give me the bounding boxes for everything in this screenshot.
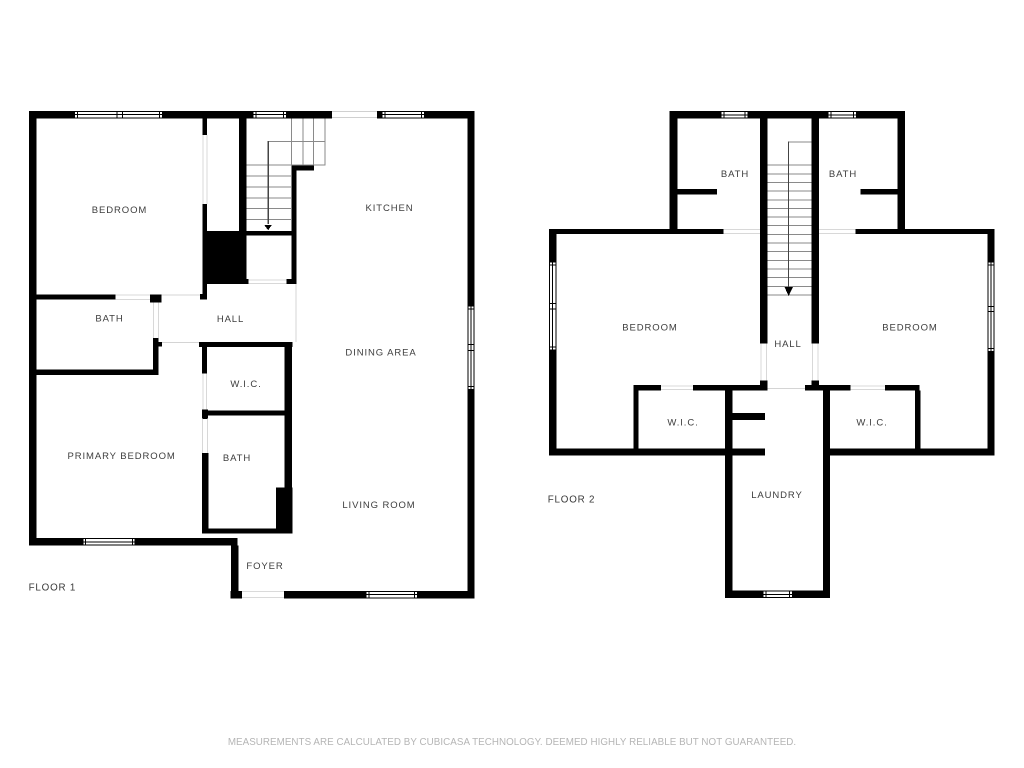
svg-text:KITCHEN: KITCHEN [366,203,414,214]
svg-text:DINING AREA: DINING AREA [345,348,416,359]
svg-text:FLOOR 2: FLOOR 2 [548,495,596,506]
svg-text:BATH: BATH [223,453,251,464]
svg-text:PRIMARY BEDROOM: PRIMARY BEDROOM [68,451,176,462]
svg-text:BEDROOM: BEDROOM [882,322,937,333]
svg-text:FLOOR 1: FLOOR 1 [29,582,77,593]
svg-text:LIVING ROOM: LIVING ROOM [342,500,415,511]
svg-text:W.I.C.: W.I.C. [230,379,261,390]
svg-text:W.I.C.: W.I.C. [856,417,887,428]
svg-text:W.I.C.: W.I.C. [667,417,698,428]
svg-text:BATH: BATH [721,169,749,180]
svg-text:HALL: HALL [774,339,801,350]
svg-text:LAUNDRY: LAUNDRY [751,490,803,501]
svg-text:BEDROOM: BEDROOM [92,205,147,216]
svg-text:BEDROOM: BEDROOM [622,322,677,333]
svg-text:HALL: HALL [217,314,244,325]
svg-text:BATH: BATH [95,313,123,324]
svg-text:MEASUREMENTS ARE CALCULATED BY: MEASUREMENTS ARE CALCULATED BY CUBICASA … [228,737,796,748]
svg-text:BATH: BATH [829,169,857,180]
svg-text:FOYER: FOYER [246,561,283,572]
